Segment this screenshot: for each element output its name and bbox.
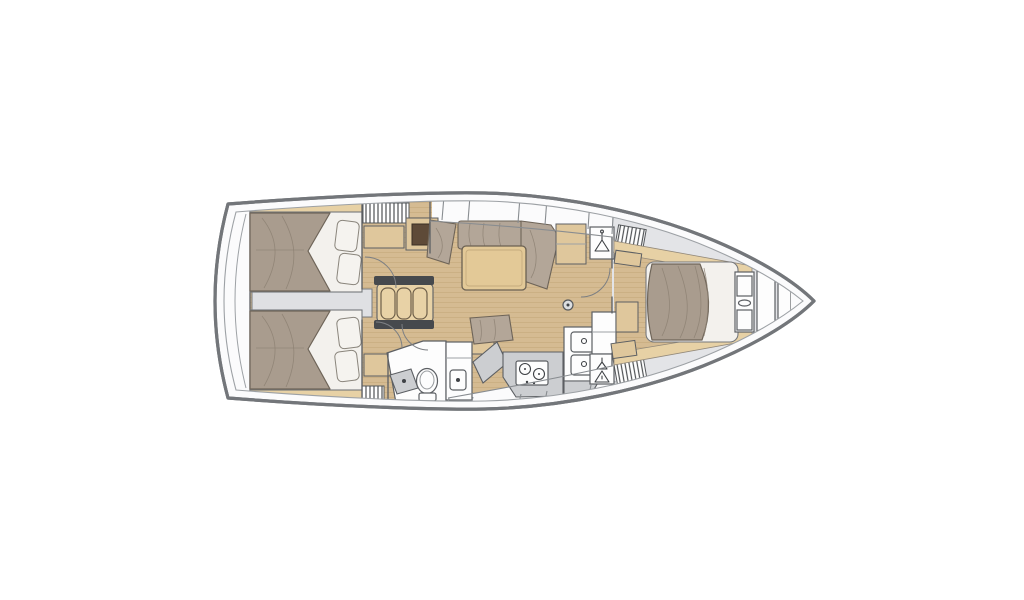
boat-floorplan <box>0 0 1024 600</box>
louver-vent-aft-top <box>363 203 409 223</box>
head <box>387 341 472 403</box>
pillow <box>336 317 361 349</box>
nav-seat-cushion <box>470 315 513 344</box>
drain-icon <box>402 379 406 383</box>
hanging-locker-port <box>590 227 614 259</box>
pillow <box>334 220 359 252</box>
drain-icon <box>456 378 460 382</box>
pillow <box>334 350 359 382</box>
hanging-locker-starboard <box>590 354 614 384</box>
step-tread <box>413 288 427 319</box>
bow-storage <box>735 272 754 332</box>
companionway-rail <box>374 276 434 285</box>
step-tread <box>381 288 395 319</box>
toilet-tank <box>419 393 436 401</box>
fwd-seat <box>611 340 637 358</box>
island-bed-duvet <box>648 264 709 340</box>
head-floor <box>387 341 446 403</box>
pillow <box>336 253 361 285</box>
interior <box>200 185 840 417</box>
companionway-steps <box>374 276 434 329</box>
boat-floorplan-canvas <box>0 0 1024 600</box>
step-tread <box>397 288 411 319</box>
companionway-rail <box>374 320 434 329</box>
salon-table <box>462 246 526 290</box>
cabin-shelf <box>364 226 404 248</box>
fwd-cabinet <box>616 302 638 332</box>
